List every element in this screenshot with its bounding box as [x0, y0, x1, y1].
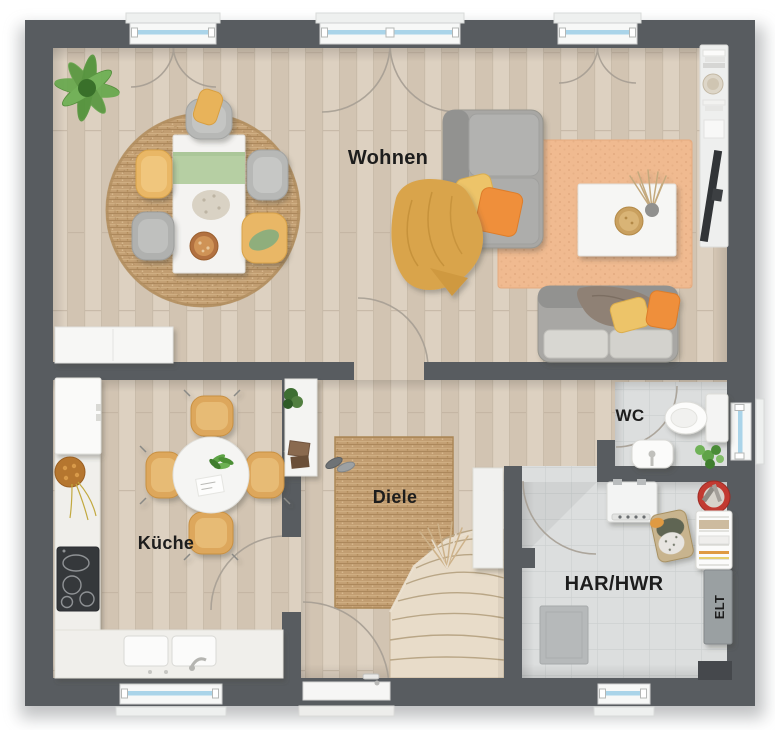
kitchen-table [173, 437, 249, 513]
room-label-wc: WC [616, 406, 645, 425]
room-label-har-hwr: HAR/HWR [565, 573, 664, 595]
books [703, 50, 725, 56]
dining-table [173, 135, 245, 273]
window [731, 399, 764, 464]
hall-wardrobe [283, 379, 317, 476]
tv-lowboard [700, 45, 729, 247]
room-label-wohnen: Wohnen [348, 147, 428, 169]
wall-niche [698, 661, 732, 680]
wall-interior [282, 612, 301, 678]
wall-interior [597, 440, 615, 468]
chair [132, 212, 174, 260]
floor-mat [540, 606, 588, 664]
floorplan-image: Wohnen Küche Diele WC HAR/HWR ELT [0, 0, 775, 730]
wall-nub [522, 548, 535, 568]
room-label-kueche: Küche [138, 533, 195, 553]
window [594, 684, 654, 716]
window [554, 13, 641, 44]
floorplan-svg: Wohnen Küche Diele WC HAR/HWR ELT [0, 0, 775, 730]
room-label-elt: ELT [712, 595, 727, 620]
chair [242, 213, 287, 263]
chair [136, 150, 172, 198]
fridge [55, 378, 101, 454]
wall-interior [504, 466, 522, 678]
cooktop [57, 547, 99, 611]
wall-left [25, 20, 53, 706]
stair-side-panel [473, 468, 503, 568]
books [288, 441, 310, 458]
window [316, 13, 464, 44]
pillow-orange [645, 290, 681, 331]
red-bowl [698, 481, 730, 513]
wall-interior [424, 362, 727, 380]
vase [645, 203, 659, 217]
washing-machine [607, 479, 657, 522]
door-handle [363, 674, 379, 679]
wc-sink [632, 440, 673, 468]
drying-rack [696, 511, 732, 569]
window [126, 13, 220, 44]
room-label-diele: Diele [373, 487, 418, 507]
sideboard [55, 327, 173, 363]
window [116, 684, 226, 716]
chair [247, 150, 288, 200]
wall-interior [53, 362, 354, 380]
sofa-bottom [538, 286, 681, 362]
